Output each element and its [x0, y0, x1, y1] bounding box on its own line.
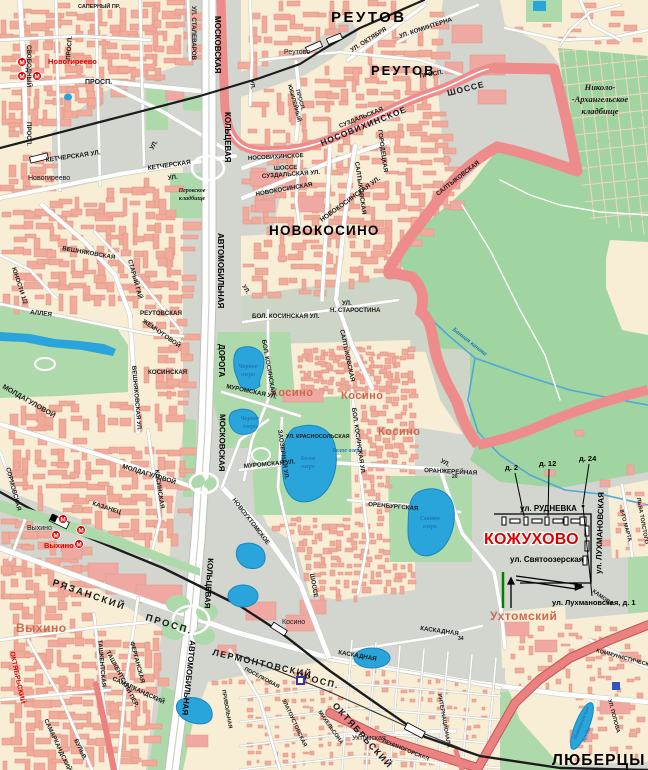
- svg-text:Реутово: Реутово: [284, 49, 310, 56]
- svg-text:озеро: озеро: [243, 424, 257, 430]
- svg-text:КОСИНСКАЯ: КОСИНСКАЯ: [148, 369, 188, 376]
- svg-text:ПРОСП.: ПРОСП.: [85, 79, 112, 86]
- svg-text:СВОБОДНЫЙ: СВОБОДНЫЙ: [25, 45, 33, 88]
- svg-text:Святое: Святое: [420, 516, 440, 522]
- svg-text:Выхино: Выхино: [44, 541, 74, 550]
- svg-text:Ухтомский: Ухтомский: [490, 609, 557, 623]
- svg-text:УЛ. КРАСНОСОЛЬСКАЯ: УЛ. КРАСНОСОЛЬСКАЯ: [286, 434, 350, 440]
- svg-text:М: М: [19, 59, 24, 66]
- svg-text:Косино: Косино: [282, 619, 305, 626]
- svg-text:Белое: Белое: [299, 456, 315, 462]
- svg-text:Н. СТАРОСТИНА: Н. СТАРОСТИНА: [330, 307, 381, 314]
- svg-text:Черное: Черное: [240, 416, 259, 422]
- svg-text:КОЖУХОВО: КОЖУХОВО: [484, 531, 579, 548]
- svg-text:МОСКОВСКАЯ: МОСКОВСКАЯ: [217, 414, 227, 472]
- svg-text:М: М: [76, 541, 81, 548]
- svg-text:Косино: Косино: [378, 426, 421, 438]
- svg-text:РЕУТОВСКАЯ: РЕУТОВСКАЯ: [140, 310, 182, 317]
- svg-text:ул. Святоозерская: ул. Святоозерская: [510, 555, 584, 564]
- svg-text:Выхино: Выхино: [27, 525, 52, 532]
- svg-text:АВТОМОБИЛЬНАЯ: АВТОМОБИЛЬНАЯ: [216, 233, 225, 308]
- svg-text:20: 20: [452, 474, 458, 480]
- svg-text:МОСКОВСКАЯ: МОСКОВСКАЯ: [213, 16, 222, 74]
- svg-text:Черное: Черное: [238, 364, 257, 370]
- svg-text:М: М: [60, 516, 65, 523]
- svg-text:Косино: Косино: [341, 390, 384, 402]
- svg-text:д. 12: д. 12: [539, 459, 556, 468]
- svg-text:РЕУТОВ: РЕУТОВ: [331, 9, 407, 26]
- svg-text:УЛ.: УЛ.: [342, 300, 352, 307]
- svg-text:НОВОКОСИНО: НОВОКОСИНО: [269, 223, 380, 238]
- svg-text:34: 34: [458, 636, 464, 642]
- svg-text:Ухтомская: Ухтомская: [352, 735, 386, 742]
- svg-text:д. 24: д. 24: [579, 454, 597, 463]
- svg-text:УЛ. СТАЛЕВАРОВ: УЛ. СТАЛЕВАРОВ: [190, 6, 197, 61]
- svg-text:БОЛ. КОСИНСКАЯ УЛ.: БОЛ. КОСИНСКАЯ УЛ.: [252, 313, 320, 320]
- svg-text:КОЛЬЦЕВАЯ: КОЛЬЦЕВАЯ: [223, 112, 232, 163]
- svg-text:УЛ.: УЛ.: [167, 174, 178, 182]
- svg-text:УЛ.: УЛ.: [248, 80, 256, 91]
- svg-text:кладбище: кладбище: [581, 106, 618, 116]
- svg-text:Новогиреево: Новогиреево: [48, 57, 97, 66]
- svg-text:Николо-: Николо-: [584, 82, 616, 92]
- svg-text:кладбище: кладбище: [179, 195, 206, 202]
- svg-text:ДОРОГА: ДОРОГА: [217, 344, 226, 377]
- svg-text:озеро: озеро: [301, 464, 315, 470]
- svg-text:д. 2: д. 2: [505, 463, 518, 472]
- svg-text:-Архангельское: -Архангельское: [572, 94, 629, 104]
- svg-text:озеро: озеро: [241, 372, 255, 378]
- svg-text:Новогиреево: Новогиреево: [28, 175, 70, 182]
- svg-text:САПЕРНЫЙ ПР.: САПЕРНЫЙ ПР.: [78, 2, 121, 10]
- svg-text:Перовское: Перовское: [177, 188, 205, 194]
- svg-text:М: М: [34, 73, 39, 80]
- svg-text:Выхино: Выхино: [16, 621, 67, 635]
- svg-text:ПРОСП.: ПРОСП.: [25, 122, 32, 146]
- svg-text:М: М: [53, 532, 58, 539]
- svg-text:ЛЮБЕРЦЫ: ЛЮБЕРЦЫ: [552, 752, 646, 769]
- svg-text:озеро: озеро: [423, 524, 437, 530]
- svg-text:ул. Лухмановская, д. 1: ул. Лухмановская, д. 1: [552, 598, 636, 607]
- svg-text:М: М: [78, 527, 83, 534]
- svg-text:М: М: [19, 73, 24, 80]
